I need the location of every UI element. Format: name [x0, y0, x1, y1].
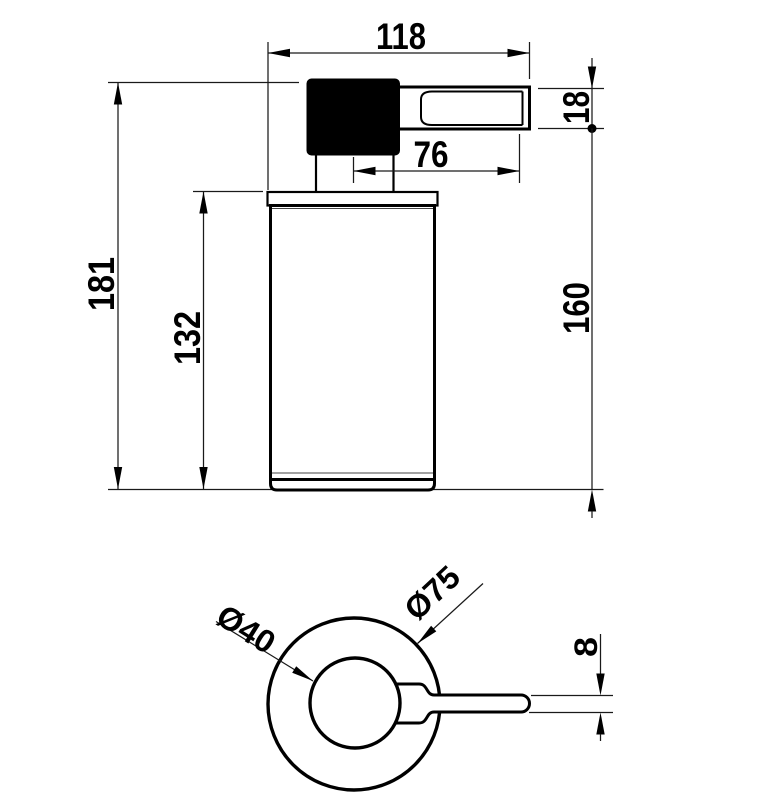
- side-view: 118 181 132 76 18: [81, 16, 604, 518]
- dim-label-76: 76: [414, 134, 449, 175]
- arrowhead-left: [268, 49, 290, 57]
- spout-outer: [399, 87, 530, 129]
- arrowhead-bottom: [199, 467, 207, 489]
- dimension-18: 18: [556, 58, 597, 133]
- bottle-body: [271, 206, 435, 491]
- dim-label-d40: Ø40: [210, 597, 282, 660]
- arrowhead-left: [354, 167, 376, 175]
- dispenser-drawing: 118 181 132 76 18: [0, 0, 757, 811]
- dimension-132: 132: [167, 192, 208, 490]
- arrowhead-d75: [418, 626, 437, 644]
- dim-label-160: 160: [556, 282, 597, 334]
- arrowhead-bottom: [596, 713, 604, 735]
- dimension-160: 160: [556, 129, 597, 519]
- arrowhead-bottom: [588, 490, 596, 512]
- arrowhead-bottom: [114, 467, 122, 489]
- dim-label-118: 118: [376, 16, 426, 57]
- arrowhead-top: [588, 67, 596, 89]
- arrowhead-top: [199, 192, 207, 214]
- arrowhead-top: [114, 83, 122, 105]
- dim-label-181: 181: [81, 257, 122, 311]
- arrowhead-top: [596, 674, 604, 696]
- top-view: Ø40 Ø75 8: [210, 559, 613, 790]
- technical-drawing-page: 118 181 132 76 18: [0, 0, 757, 811]
- dimension-8: 8: [529, 634, 613, 741]
- arrowhead-right: [498, 167, 520, 175]
- dim-label-8: 8: [568, 637, 604, 657]
- inner-circle: [310, 658, 400, 748]
- dim-label-d75: Ø75: [397, 559, 467, 628]
- dim-label-18: 18: [556, 91, 597, 124]
- dispenser-side-outline: [268, 79, 530, 491]
- dimension-118: 118: [268, 16, 530, 57]
- dimension-181: 181: [81, 83, 122, 490]
- arrowhead-right: [508, 49, 530, 57]
- handle-mask: [396, 684, 530, 723]
- dimension-d75: Ø75: [397, 559, 483, 644]
- spout-inner: [421, 92, 523, 126]
- pump-head: [307, 79, 401, 156]
- neck-collar: [268, 192, 438, 206]
- dim-label-132: 132: [167, 311, 208, 365]
